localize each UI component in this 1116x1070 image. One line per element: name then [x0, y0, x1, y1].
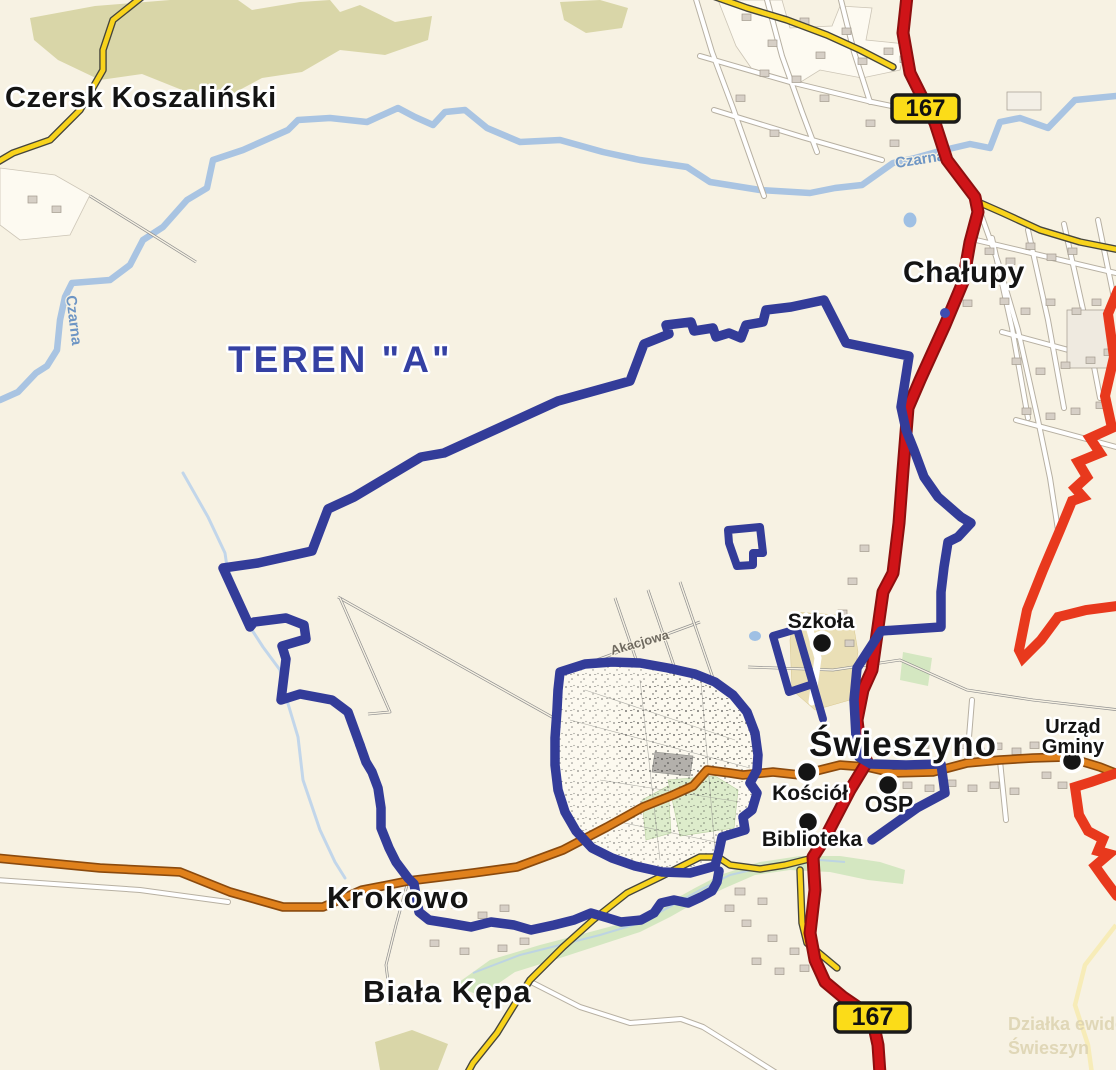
- place-label-chalupy: Chałupy: [903, 256, 1025, 289]
- poi-label-kosciol: Kościół: [772, 782, 848, 805]
- poi-label-biblioteka: Biblioteka: [762, 828, 863, 851]
- place-label-czersk: Czersk Koszaliński: [5, 82, 277, 114]
- poi-label-szkola: Szkoła: [788, 610, 855, 633]
- place-label-biala-kepa: Biała Kępa: [363, 974, 532, 1009]
- poi-label-urzad-line2: Gminy: [1042, 736, 1105, 758]
- route-number: 167: [905, 95, 945, 122]
- map-svg: Czarna Czarna: [0, 0, 1116, 1070]
- forest-patch: [30, 0, 432, 94]
- blue-node-dot: [940, 308, 950, 318]
- forest-patch: [375, 1030, 448, 1070]
- boundary-loop-small: [728, 527, 763, 566]
- poi-dot-szkola: [812, 633, 833, 654]
- poi-label-urzad-line1: Urząd: [1045, 716, 1101, 738]
- pond: [749, 631, 761, 641]
- map-canvas: Czarna Czarna: [0, 0, 1116, 1070]
- route-number: 167: [852, 1003, 894, 1031]
- forest-patch: [560, 0, 628, 33]
- road-layer: [0, 0, 1116, 1070]
- route-shield-south: 167: [835, 1003, 910, 1032]
- watermark-line1: Działka ewide: [1008, 1014, 1116, 1034]
- street-label-akacjowa: Akacjowa: [609, 627, 672, 658]
- watermark: Działka ewide Świeszyn: [1008, 1014, 1116, 1058]
- field-path-layer: [90, 196, 1116, 1005]
- red-boundary-south: [1075, 773, 1116, 896]
- pond: [904, 213, 917, 228]
- boundary-red-layer: [1019, 290, 1116, 896]
- czarna-river: [0, 96, 1116, 400]
- river-label-czarna-vertical: Czarna: [62, 294, 85, 346]
- route-shield-north: 167: [892, 95, 959, 122]
- place-label-krokowo: Krokowo: [327, 880, 470, 915]
- place-label-swieszyno: Świeszyno: [809, 724, 997, 764]
- region-label-teren-a: TEREN "A": [228, 339, 452, 380]
- poi-label-osp: OSP: [865, 791, 914, 817]
- watermark-line2: Świeszyn: [1008, 1037, 1089, 1058]
- poi-dot-kosciol: [797, 762, 818, 783]
- river-layer: Czarna Czarna: [0, 96, 1116, 973]
- settlement-area: [0, 168, 90, 240]
- valley-green: [900, 652, 932, 686]
